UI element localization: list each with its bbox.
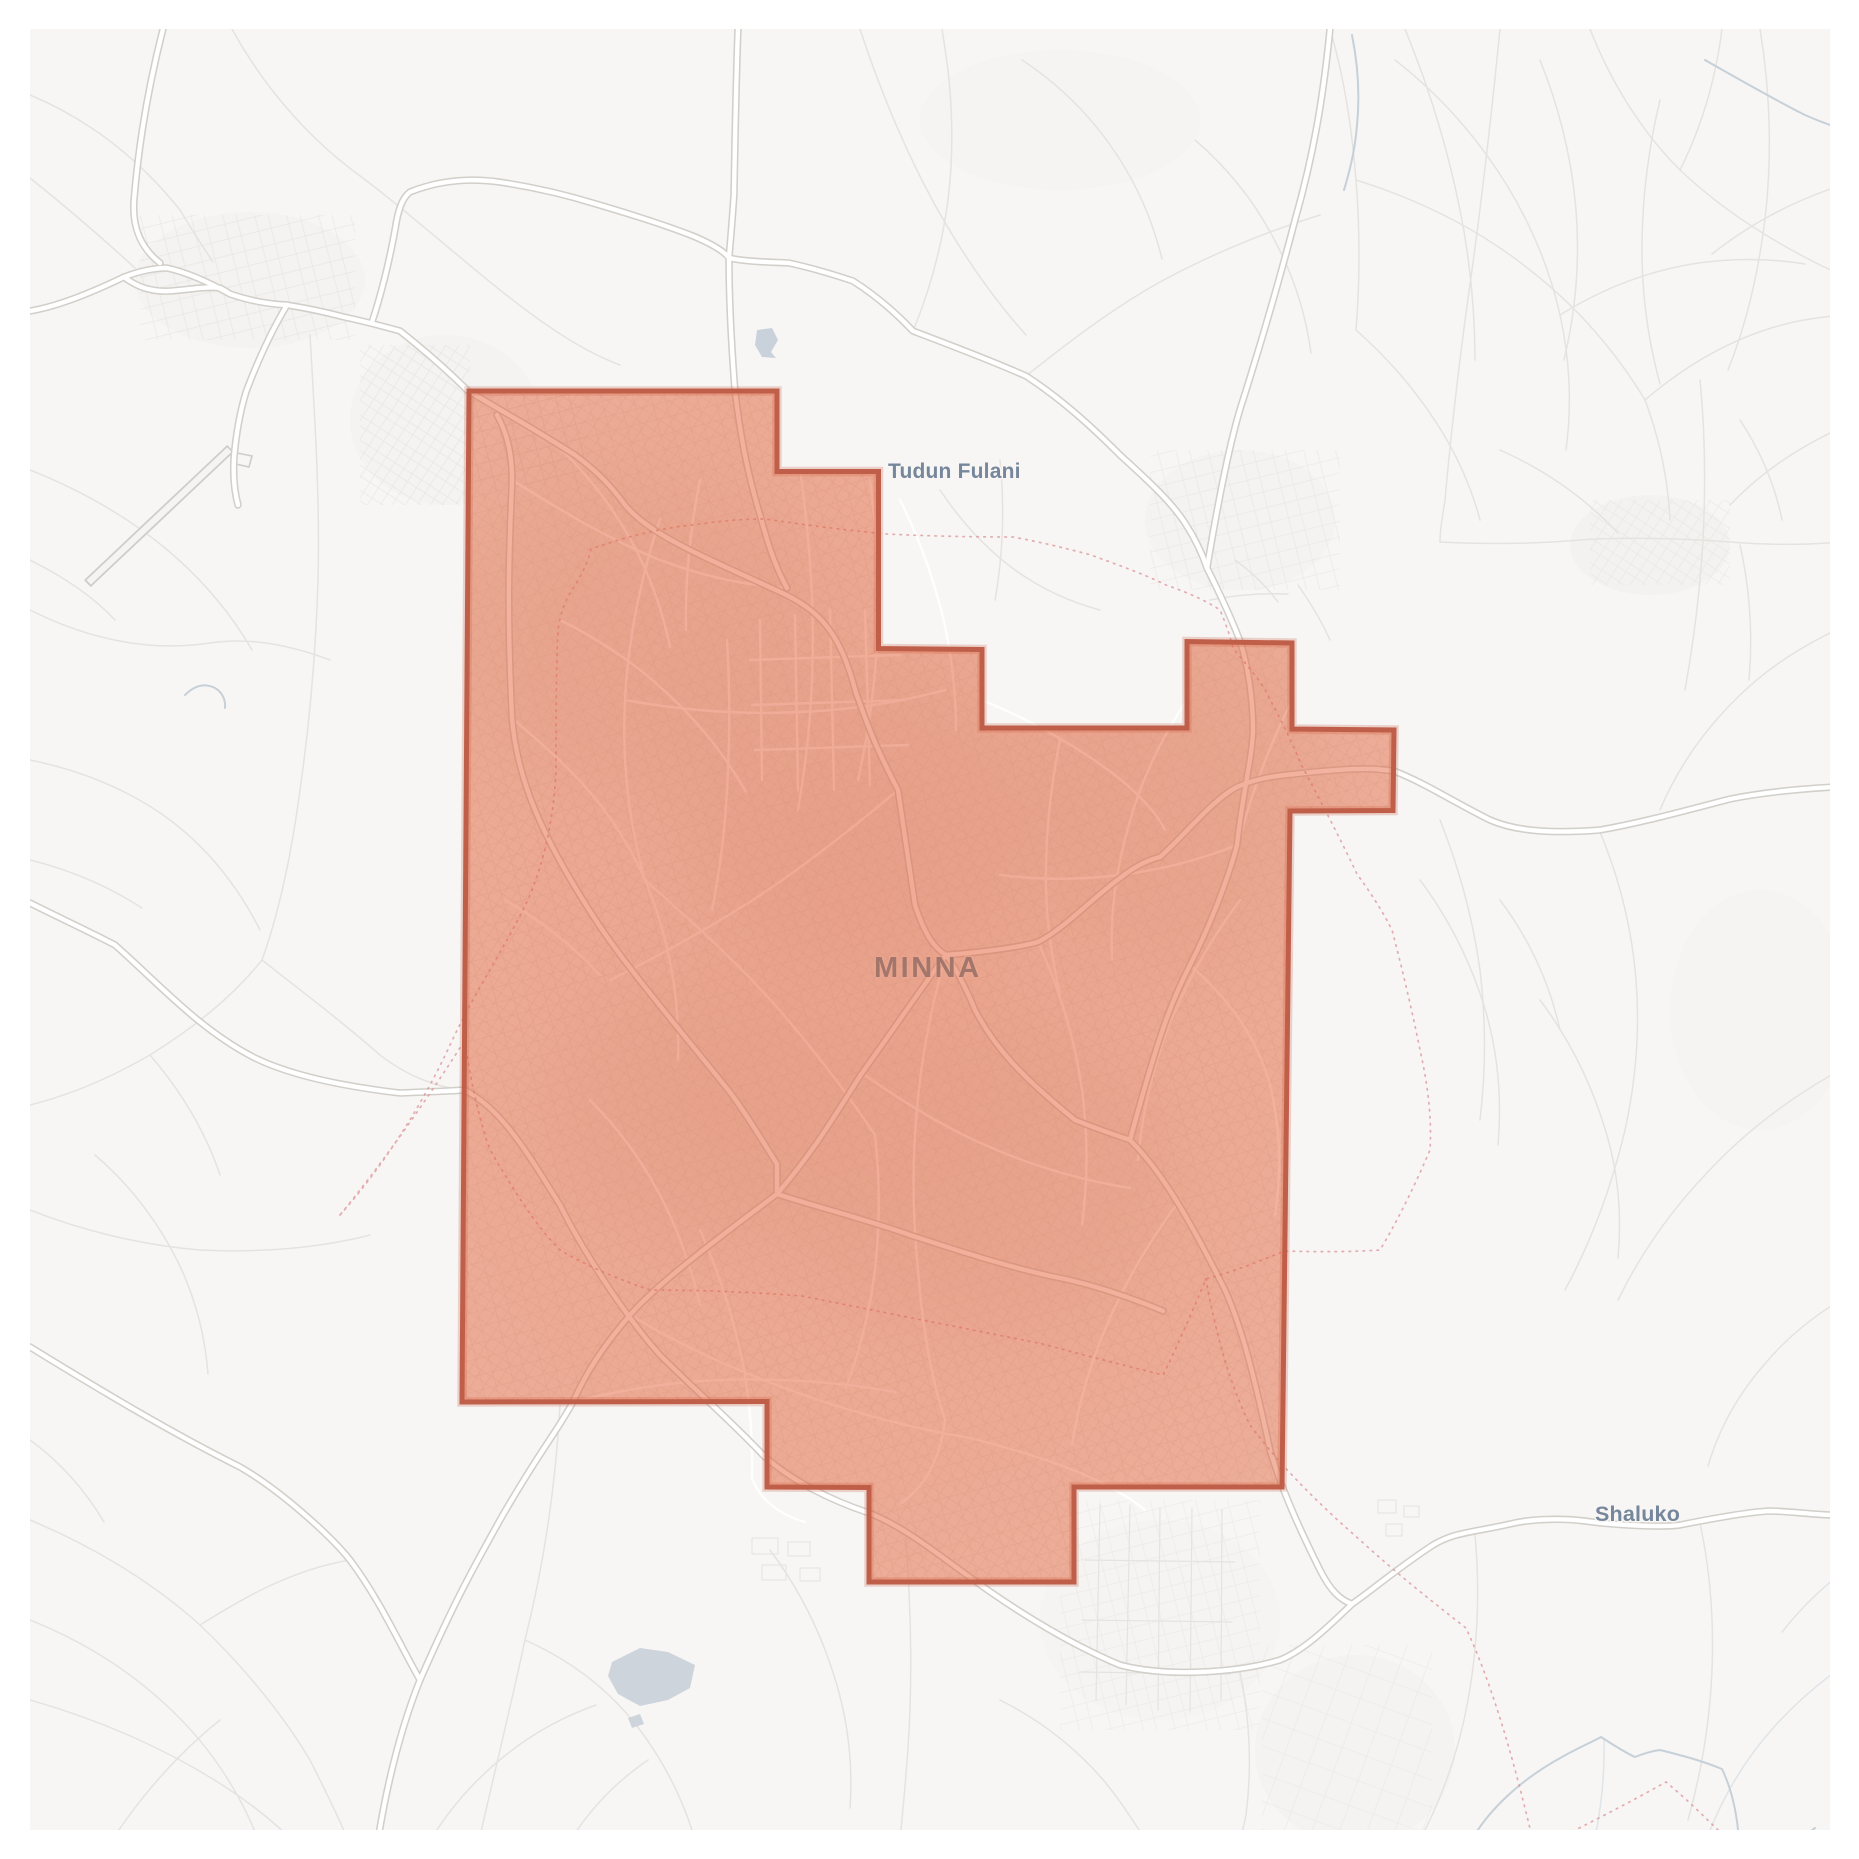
svg-text:MINNA: MINNA: [874, 952, 982, 984]
svg-text:Shaluko: Shaluko: [1595, 1502, 1680, 1526]
svg-text:Tudun Fulani: Tudun Fulani: [888, 460, 1021, 483]
